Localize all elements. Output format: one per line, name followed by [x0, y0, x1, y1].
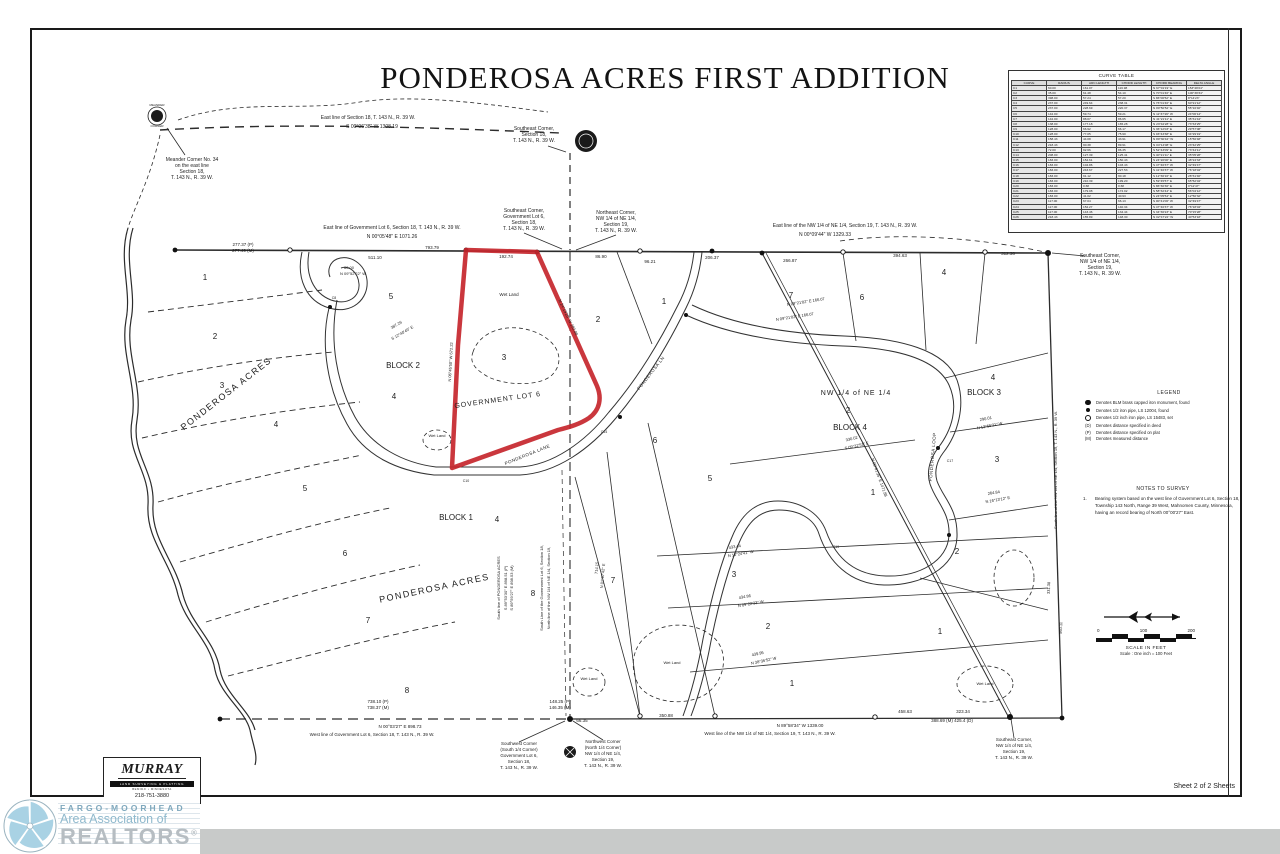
map-label: GOVERNMENT LOT 6: [454, 391, 541, 410]
map-label: Wet Land: [499, 292, 519, 297]
scale-bar: 0 100 200 SCALE IN FEET Scale : One inch…: [1096, 628, 1196, 656]
notes-title: NOTES TO SURVEY: [1083, 486, 1243, 494]
highlighted-parcel-outline: [452, 250, 600, 468]
map-label: 5: [303, 484, 308, 493]
map-label: T. 143 N., R. 39 W.: [584, 763, 622, 768]
map-label: BLOCK 2: [386, 361, 420, 370]
map-label: 7: [366, 616, 371, 625]
realtors-logo-text: FARGO-MOORHEAD Area Association of REALT…: [58, 803, 200, 848]
map-label: 86.90: [595, 254, 607, 259]
surveyor-location: BEMIDJI • MINNESOTA: [104, 787, 200, 791]
south-boundary-line: [570, 718, 1062, 719]
map-label: Southwest Corner: [501, 741, 538, 746]
blm-monument-symbol: [564, 746, 576, 758]
meander-corner-stamp: [151, 110, 163, 122]
map-label: N 06°45'50" W 672.22: [447, 341, 454, 381]
map-label: (South 1/4 Corner): [500, 747, 538, 752]
map-label: 738.10 (P): [367, 699, 389, 704]
map-label: 277.37 (P): [232, 242, 254, 247]
map-label: 2: [213, 332, 218, 341]
map-label: 323.34: [956, 709, 970, 714]
map-label: 350.88: [659, 713, 673, 718]
map-label: BLOCK 4: [833, 423, 867, 432]
map-label: 439.95: [751, 650, 765, 658]
map-label: 738.37 (M): [367, 705, 389, 710]
map-label: 434.96: [738, 593, 752, 600]
map-label: 8: [531, 589, 536, 598]
legend-code: (M): [1083, 436, 1093, 443]
map-label: 277.49 (M): [232, 248, 254, 253]
map-label: 312.36: [1001, 251, 1015, 256]
map-label: 388.69 (M) 425.4 (D): [931, 718, 973, 723]
map-label: BLOCK 1: [439, 513, 473, 522]
map-label: 6: [860, 293, 865, 302]
legend-text: Denotes 1/2 iron pipe, LS 12004, found: [1096, 408, 1169, 415]
map-label: 3: [502, 353, 507, 362]
plat-sheet: PONDEROSA ACRES FIRST ADDITION: [0, 0, 1280, 854]
map-label: T. 143 N., R. 39 W.: [1079, 271, 1121, 277]
map-label: N 16°13'12" E: [985, 495, 1011, 504]
iron-pipe-set-icon: [1083, 415, 1093, 424]
iron-pipe-found-icon: [1083, 408, 1093, 415]
legend-item: (M)Denotes measured distance: [1083, 436, 1255, 443]
map-label: PONDEROSA LN: [636, 355, 665, 391]
legend-text: Denotes measured distance: [1096, 436, 1148, 443]
map-label: (North 1/4 Corner): [585, 745, 622, 750]
adjacent-plat-lot-lines: [138, 290, 455, 676]
curve-table-cell: 155.89: [1082, 214, 1117, 219]
map-label: 1: [871, 488, 876, 497]
curve-table-title: CURVE TABLE: [1011, 73, 1222, 78]
map-label: T. 143 N., R. 39 W.: [995, 755, 1033, 760]
map-label: 1: [662, 297, 667, 306]
map-label: 458.63: [898, 709, 912, 714]
quarter-line-parallel: [562, 470, 566, 716]
realtors-logo: FARGO-MOORHEAD Area Association of REALT…: [0, 797, 200, 854]
scale-tick-0: 0: [1097, 628, 1100, 633]
map-label: 330.02: [845, 435, 859, 443]
map-label: 3: [732, 570, 737, 579]
legend-item: Denotes BLM brass capped iron monument, …: [1083, 400, 1255, 408]
map-label: 2: [766, 622, 771, 631]
map-label: 793.79: [425, 245, 439, 250]
map-label: 331.38: [1046, 581, 1051, 594]
scale-tick-200: 200: [1187, 628, 1195, 633]
map-label: N 09°22'33" W: [737, 599, 764, 608]
curve-table-col-header: CHORD LENGTH: [1117, 80, 1152, 85]
map-labels-layer: MEANDERCORNERMeander Corner No. 34on the…: [149, 103, 1120, 770]
map-label: 1: [938, 627, 943, 636]
map-label: S 00°06'38" W 1308.19: [346, 124, 398, 130]
notes-to-survey: NOTES TO SURVEY 1. Bearing system based …: [1083, 486, 1243, 516]
map-label: 4: [495, 515, 500, 524]
legend-text: Denotes BLM brass capped iron monument, …: [1096, 400, 1190, 407]
map-label: 2: [846, 406, 851, 415]
map-label: T. 143 N., R. 39 W.: [595, 228, 637, 234]
map-label: C10: [463, 479, 469, 483]
map-label: N 00°09'44" W 1329.33: [799, 232, 851, 238]
map-label: NW 1/4 of NE 1/4,: [996, 743, 1032, 748]
map-label: 4: [991, 373, 996, 382]
scale-bar-graphic: [1096, 634, 1196, 643]
map-label: N 89°58'34" W 1339.00: [777, 723, 824, 728]
map-label: Wet Land: [976, 681, 993, 686]
section-corner-seal: [575, 130, 597, 152]
map-label: C14: [601, 430, 607, 434]
legend-title: LEGEND: [1083, 390, 1255, 398]
map-label: 4: [392, 392, 397, 401]
map-label: N 09°52'22" W: [340, 271, 366, 276]
map-label: Section 19,: [1003, 749, 1026, 754]
legend-item: Denotes 1/2 inch iron pipe, LS 15483, se…: [1083, 415, 1255, 424]
curve-table-cell: 40°53'18": [1187, 214, 1222, 219]
north-arrow-icon: [1100, 608, 1190, 626]
map-label: S 89°59'27" E 898.53 (M): [509, 565, 514, 611]
map-label: Section 19,: [592, 757, 615, 762]
map-label: 5: [708, 474, 713, 483]
map-label: 1: [790, 679, 795, 688]
map-label: West line of the NW 1/4 of NE 1/4, Secti…: [704, 731, 835, 736]
map-label: N 01°07'42" E: [599, 563, 606, 589]
map-label: S 89°53'30" E 898.51 (P): [503, 565, 508, 610]
map-label: Wet Land: [428, 433, 445, 438]
map-label: C19: [833, 545, 839, 549]
map-label: T. 143 N., R. 39 W.: [513, 138, 555, 144]
registered-mark: ®: [191, 829, 198, 838]
boundary-approach-dashed: [840, 237, 1045, 252]
map-label: 4: [274, 420, 279, 429]
map-label: 148.25 (P): [549, 699, 571, 704]
map-label: 433.44: [728, 543, 742, 550]
leader-line: [167, 128, 185, 155]
lot-lines: [575, 252, 1048, 716]
leader-line: [548, 146, 566, 152]
map-label: Section 18,: [508, 759, 531, 764]
map-label: PONDEROSA ACRES: [378, 571, 490, 604]
map-label: 7: [789, 291, 794, 300]
creek-line-2: [129, 228, 255, 730]
curve-table-cell: 148.30: [1117, 214, 1152, 219]
map-label: 2: [955, 547, 960, 556]
map-label: 266.87: [783, 258, 797, 263]
map-label: East line of the NW 1/4 of NE 1/4, Secti…: [773, 223, 917, 229]
map-label: 66.35: [576, 718, 588, 723]
realtors-logo-name: REALTORS®: [60, 826, 200, 848]
map-label: MEANDER: [149, 103, 165, 107]
map-label: T. 143 N., R. 39 W.: [503, 226, 545, 232]
map-label: East line of Section 18, T. 143 N., R. 3…: [321, 115, 415, 121]
realtors-star-icon: [2, 798, 58, 854]
legend: LEGEND Denotes BLM brass capped iron mon…: [1083, 390, 1255, 443]
curve-table-cell: C26: [1012, 214, 1047, 219]
map-label: Wet Land: [663, 660, 680, 665]
note-item: 1. Bearing system based on the west line…: [1083, 496, 1243, 516]
map-label: 206.37: [705, 255, 719, 260]
map-label: N 24°19'20" W 283.08: [557, 299, 579, 337]
map-label: Wet Land: [580, 676, 597, 681]
map-label: 192.74: [499, 254, 513, 259]
curve-table-cell: 218.43: [1047, 214, 1082, 219]
map-label: West line of Government Lot 6, Section 1…: [310, 732, 435, 737]
map-label: BLOCK 3: [967, 388, 1001, 397]
map-label: Northwest Corner: [585, 739, 621, 744]
map-label: NW 1/4 of NE 1/4: [821, 390, 891, 397]
map-label: 60.00: [344, 265, 355, 270]
map-label: Government Lot 6,: [500, 753, 537, 758]
legend-item: Denotes 1/2 iron pipe, LS 12004, found: [1083, 408, 1255, 415]
map-label: C17: [947, 459, 953, 463]
map-label: 6: [653, 436, 658, 445]
map-label: 5: [389, 292, 394, 301]
map-label: 1: [203, 273, 208, 282]
creek-approach-line: [128, 135, 160, 228]
curve-table-col-header: CHORD BEARING: [1152, 80, 1187, 85]
map-label: 146.35 (M): [549, 705, 571, 710]
curve-table-row: C26218.43155.89148.30N 02°47'22" W40°53'…: [1012, 214, 1222, 219]
map-label: 511.10: [368, 255, 382, 260]
creek-line: [124, 228, 256, 765]
map-label: T. 143 N., R. 39 W.: [500, 765, 538, 770]
map-label: N 09°21'02" E 166.07: [775, 311, 814, 322]
blm-monument-icon: [1083, 400, 1093, 408]
map-label: 387.26: [390, 319, 404, 330]
map-label: 560.11: [1058, 621, 1063, 634]
map-label: South line of PONDEROSA ACRES: [496, 556, 501, 620]
curve-table-cell: N 02°47'22" W: [1152, 214, 1187, 219]
map-label: N 00°05'48" E 1071.26: [367, 234, 418, 240]
map-label: 290.01: [979, 415, 993, 422]
map-label: South Line of the Government Lot 6, Sect…: [539, 545, 544, 631]
note-number: 1.: [1083, 496, 1091, 516]
map-label: 8: [405, 686, 410, 695]
map-label: 4: [942, 268, 947, 277]
map-label: C8: [332, 296, 337, 300]
legend-text: Denotes 1/2 inch iron pipe, LS 15483, se…: [1096, 415, 1173, 422]
map-label: N 10°24'41" W: [727, 549, 754, 558]
map-label: T. 143 N., R. 39 W.: [171, 175, 213, 181]
map-label: 3: [995, 455, 1000, 464]
map-label: 2: [596, 315, 601, 324]
map-label: 714.15: [593, 561, 599, 574]
map-label: North line of the NW 1/4 of NE 1/4, Sect…: [546, 547, 551, 630]
note-text: Bearing system based on the west line of…: [1095, 496, 1243, 516]
map-label: East line of Government Lot 6, Section 1…: [323, 225, 460, 231]
map-label: NW 1/4 of NE 1/4,: [585, 751, 621, 756]
map-label: South line of the NW 1/4 of NE 1/4, Sect…: [1053, 411, 1058, 529]
map-label: 264.84: [987, 489, 1001, 496]
surveyor-name: MURRAY: [118, 763, 185, 779]
map-label: 6: [343, 549, 348, 558]
map-label: N 38°36'52" W: [750, 655, 777, 665]
map-label: 7: [611, 576, 616, 585]
surveyor-tagline-bar: LAND SURVEYING & PLATTING: [110, 781, 194, 787]
map-label: 394.63: [893, 253, 907, 258]
map-label: 96.21: [644, 259, 656, 264]
curve-table: CURVE TABLE CURVERADIUSARC LENGTHCHORD L…: [1008, 70, 1225, 233]
scale-ratio-caption: Scale : One inch = 100 Feet: [1096, 651, 1196, 656]
wetland-outlines: [423, 328, 1034, 702]
map-label: Southeast Corner,: [996, 737, 1032, 742]
map-label: CORNER: [150, 124, 164, 128]
map-label: N 00°03'27" E 898.73: [378, 724, 422, 729]
north-boundary-line: [175, 250, 1048, 253]
sheet-number-label: Sheet 2 of 2 Sheets: [1110, 783, 1235, 790]
scale-tick-100: 100: [1140, 628, 1148, 633]
